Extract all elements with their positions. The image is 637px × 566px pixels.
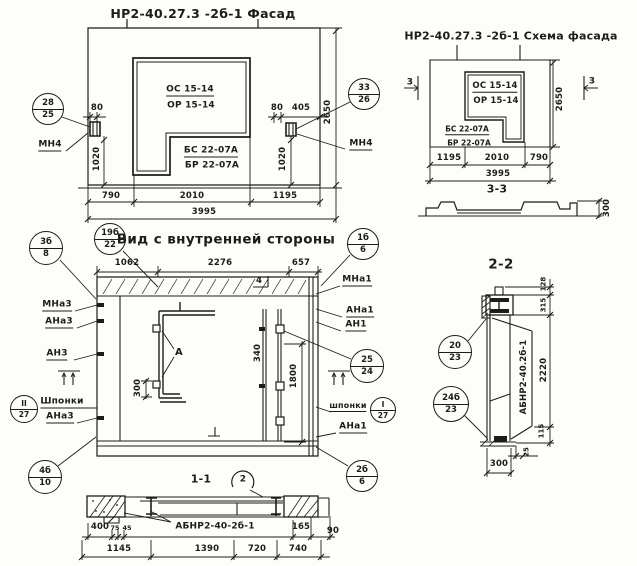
facade-block-mark-1: БС 22-07А	[184, 147, 238, 158]
scheme-section-flag-right: 3	[589, 78, 595, 87]
facade-callout-left: 28 25	[32, 93, 64, 125]
s22-dim-300: 300	[490, 460, 508, 469]
inner-edge-marker: 4	[256, 277, 262, 286]
facade-dim-405: 405	[292, 104, 310, 113]
s11-dim-90: 90	[327, 527, 339, 536]
inner-callout-1b: 1б 6	[347, 228, 379, 260]
facade-dim-790: 790	[102, 192, 120, 201]
facade-dim-2010: 2010	[180, 192, 204, 201]
inner-dim-1062: 1062	[115, 259, 139, 268]
scheme-dim-2010: 2010	[485, 154, 509, 163]
facade-title: НР2-40.27.3 -2б-1 Фасад	[110, 8, 295, 21]
inner-callout-3b: 3б 8	[29, 231, 63, 265]
facade-window-mark-1: ОС 15-14	[166, 86, 214, 97]
inner-callout-2b: 2б 6	[346, 460, 378, 492]
scheme-dim-2650: 2650	[556, 87, 565, 111]
scheme-title: НР2-40.27.3 -2б-1 Схема фасада	[404, 31, 617, 42]
s11-dim-165: 165	[292, 523, 310, 532]
inner-dim-340: 340	[254, 344, 263, 362]
inner-view-plates	[153, 325, 284, 425]
s11-dim-400: 400	[91, 523, 109, 532]
section-1-1-title: 1-1	[191, 474, 211, 485]
inner-dim-300: 300	[134, 379, 143, 397]
scheme-section-flag-left: 3	[407, 79, 413, 88]
inner-label-ana3-upper: АНа3	[45, 318, 73, 329]
section-1-1-part-label: АБНР2-40-2б-1	[175, 523, 254, 532]
s22-dim-2220: 2220	[540, 358, 549, 382]
s22-callout-20: 20 23	[438, 335, 472, 369]
s22-dim-115: 115	[539, 424, 546, 439]
scheme-dim-3995: 3995	[486, 170, 510, 179]
inner-view-lines	[58, 251, 351, 466]
inner-callout-19b: 19б 22	[94, 223, 126, 255]
s11-dim-720: 720	[248, 545, 266, 554]
s11-dim-45: 45	[122, 525, 131, 532]
scheme-dim-790: 790	[530, 154, 548, 163]
facade-dim-1195: 1195	[273, 192, 297, 201]
drawing-sheet: НР2-40.27.3 -2б-1 Фасад ОС 15-14 ОР 15-1…	[0, 0, 637, 566]
section-2-2-title: 2-2	[488, 258, 514, 272]
inner-label-ana3-lower: АНа3	[46, 413, 74, 424]
inner-label-an1: АН1	[345, 321, 366, 332]
inner-callout-25: 25 24	[350, 349, 384, 383]
facade-dim-80-left: 80	[91, 104, 103, 113]
s11-dim-1145: 1145	[107, 545, 131, 554]
scheme-window-mark-1: ОС 15-14	[472, 82, 517, 93]
facade-dim-2650: 2650	[324, 100, 333, 124]
facade-anchor-label-right: МН4	[349, 140, 372, 151]
s11-dim-1390: 1390	[195, 545, 219, 554]
facade-dim-1020-left: 1020	[93, 147, 102, 171]
s22-dim-315: 315	[541, 298, 548, 313]
facade-dim-80-right: 80	[271, 104, 283, 113]
inner-label-shponki-right: шпонки	[329, 402, 366, 412]
inner-label-an3: АН3	[46, 350, 67, 361]
section-2-2-part-label: АБНР2-40.2б-1	[520, 340, 529, 415]
scheme-window-mark-2: ОР 15-14	[473, 97, 518, 106]
section-3-3-title: 3-3	[487, 184, 507, 195]
section-2-2-fills	[490, 298, 509, 442]
inner-dim-657: 657	[292, 259, 310, 268]
facade-callout-right: 33 26	[348, 78, 380, 110]
s22-dim-25: 25	[524, 447, 531, 457]
section-3-3-dim-300: 300	[603, 199, 612, 217]
facade-dim-3995: 3995	[192, 208, 216, 217]
facade-block-mark-2: БР 22-07А	[185, 162, 239, 171]
inner-label-ana1-upper: АНа1	[346, 307, 374, 318]
facade-dim-1020-right: 1020	[279, 147, 288, 171]
inner-detail-marker-a: А	[175, 348, 183, 358]
scheme-block-mark-2: БР 22-07А	[447, 139, 491, 147]
inner-label-shponki-left: Шпонки	[40, 398, 83, 409]
inner-label-mna3: МНа3	[42, 301, 72, 312]
section-1-1-detail-marker: 2	[240, 476, 246, 485]
inner-view-title: Вид с внутренней стороны	[117, 233, 336, 247]
inner-dim-1800: 1800	[290, 364, 299, 388]
facade-anchor-label-left: МН4	[38, 141, 61, 152]
s22-callout-24b: 24б 23	[433, 386, 469, 422]
s11-dim-75: 75	[110, 525, 119, 532]
scheme-block-mark-1: БС 22-07А	[445, 125, 489, 135]
inner-label-ana1-lower: АНа1	[339, 423, 367, 434]
inner-label-mna1: МНа1	[342, 276, 372, 287]
inner-callout-4b: 4б 10	[28, 460, 62, 494]
scheme-dim-1195: 1195	[437, 154, 461, 163]
facade-window-mark-2: ОР 15-14	[167, 102, 215, 111]
s11-dim-740: 740	[289, 545, 307, 554]
inner-callout-key-right: I 27	[370, 397, 396, 423]
s22-dim-128: 128	[541, 277, 548, 292]
inner-dim-2276: 2276	[208, 259, 232, 268]
inner-callout-key-left: II 27	[10, 395, 38, 423]
